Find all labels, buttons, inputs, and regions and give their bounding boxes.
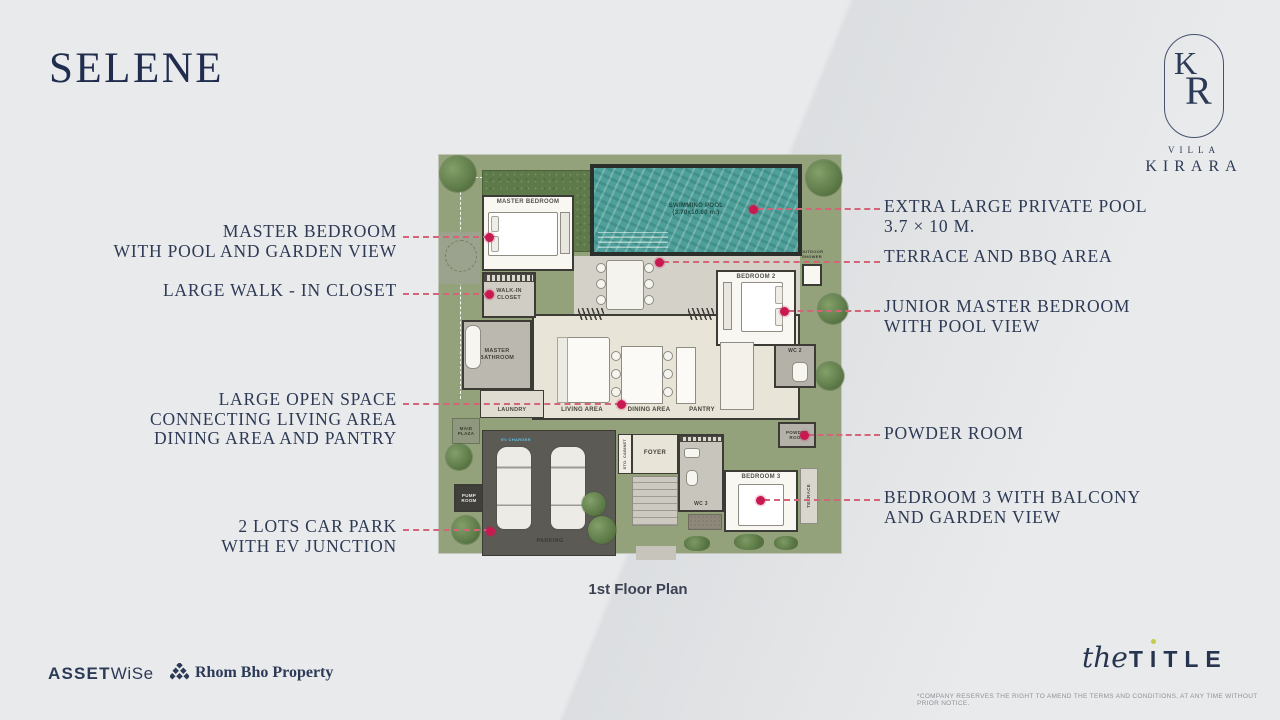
chair-10 [663,351,673,361]
sofa-back [557,337,568,403]
door-1 [578,308,604,320]
ev-charger-label-label: EV CHARGER [501,438,531,443]
outdoor-shower-label-label: OUTDOOR SHOWER [801,250,824,260]
assetwise-text-2: WiSe [111,664,154,683]
door-2 [688,308,714,320]
callout-terrace-bbq: TERRACE AND BBQ AREA [884,247,1244,267]
the-title-logo: the TITLE [1082,644,1228,672]
chair-2 [596,279,606,289]
tree-5 [446,444,472,470]
foyer-label: FOYER [644,450,666,457]
title-letters-tle: TLE [1163,646,1227,672]
wc3-note [680,436,722,442]
assetwise-text-1: ASSET [48,664,111,683]
outdoor-shower [802,264,822,286]
laundry: LAUNDRY [480,390,544,418]
callout-walk-in-closet: LARGE WALK - IN CLOSET [67,281,397,301]
living-label: LIVING AREA [542,406,622,416]
chair-11 [663,369,673,379]
walkin-closet-label: WALK-IN CLOSET [496,288,522,301]
walkin-shelf [484,274,534,282]
tree-1 [440,156,476,192]
chair-7 [611,351,621,361]
title-letter-i: I [1150,646,1163,672]
callout-bedroom-3: BEDROOM 3 WITH BALCONY AND GARDEN VIEW [884,488,1244,527]
b2-pillow-2 [775,308,783,326]
laundry-label: LAUNDRY [481,407,543,414]
floor-plan: SWIMMING POOL (3.70x10.00 m.)MASTER BEDR… [438,148,846,560]
tree-3 [818,294,848,324]
wc2-label: WC 2 [776,348,814,354]
bush-1 [684,536,710,551]
tree-2 [806,160,842,196]
title-i-dot [1151,639,1156,644]
bush-3 [774,536,798,550]
gravel [688,514,722,530]
master-bedroom-label: MASTER BEDROOM [484,199,572,206]
sto-cabinet: STO. CABINET [618,434,632,474]
assetwise-logo: ASSETWiSe [48,664,154,684]
chair-12 [663,387,673,397]
callout-car-park: 2 LOTS CAR PARK WITH EV JUNCTION [67,517,397,556]
logo-monogram-frame: K R [1164,34,1224,138]
car-1 [496,446,532,530]
callout-private-pool: EXTRA LARGE PRIVATE POOL 3.7 × 10 M. [884,197,1244,236]
page-title: SELENE [49,44,224,93]
tree-4 [816,362,844,390]
foyer: FOYER [632,434,678,474]
master-bathroom-label: MASTER BATHROOM [480,348,514,361]
pump-room-label: PUMP ROOM [461,493,476,504]
maid-plaza-label: MAID PLAZA [458,426,475,437]
disclaimer-text: *COMPANY RESERVES THE RIGHT TO AMEND THE… [917,693,1280,707]
logo-villa-text: VILLA [1128,145,1260,155]
parking-label: PARKING [510,536,590,546]
car-2 [550,446,586,530]
mb-pillow-2 [491,236,499,252]
bathtub [465,325,481,369]
the-title-script: the [1082,644,1128,672]
chair-5 [644,279,654,289]
living-label-label: LIVING AREA [561,407,603,414]
boundary-left [460,177,461,399]
floor-plan-caption: 1st Floor Plan [538,581,738,598]
dining-label-label: DINING AREA [628,407,671,414]
chair-1 [596,263,606,273]
callout-junior-master: JUNIOR MASTER BEDROOM WITH POOL VIEW [884,297,1244,336]
mb-pillow-1 [491,216,499,232]
bedroom3-label: BEDROOM 3 [726,474,796,481]
wc2-fixture [792,362,808,382]
callout-open-space: LARGE OPEN SPACE CONNECTING LIVING AREA … [67,390,397,449]
walkway-circle [445,240,477,272]
callout-master-bedroom: MASTER BEDROOM WITH POOL AND GARDEN VIEW [67,222,397,261]
outdoor-table [606,260,644,310]
entry-path [636,546,676,560]
chair-9 [611,387,621,397]
villa-kirara-logo: K R VILLA KIRARA [1128,30,1260,176]
monogram-r: R [1185,67,1212,114]
chair-6 [644,295,654,305]
pantry-label-label: PANTRY [689,407,715,414]
sto-cabinet-label: STO. CABINET [623,439,628,469]
wc3-sink [684,448,700,458]
chair-4 [644,263,654,273]
b2-pillow-1 [775,286,783,304]
rhom-bho-diamond-icon [170,663,189,683]
entry-steps [632,476,678,526]
maid-plaza: MAID PLAZA [452,418,480,444]
wc3-label: WC 3 [680,501,722,507]
logo-kirara-text: KIRARA [1128,158,1260,176]
bush-2 [734,534,764,550]
terrace-3: TERRACE [800,468,818,524]
chair-8 [611,369,621,379]
b3-bed [738,484,784,526]
outdoor-shower-label: OUTDOOR SHOWER [786,248,838,262]
ev-charger-label: EV CHARGER [494,436,538,444]
powder-room: POWDER ROOM [778,422,816,448]
pool-steps [598,232,668,248]
rhom-bho-name: Rhom Bho Property [195,664,333,682]
parking-label-label: PARKING [536,538,563,545]
rhom-bho-logo: Rhom Bho Property [170,663,333,683]
wc3: WC 3 [678,434,724,512]
callout-powder-room: POWDER ROOM [884,424,1244,444]
mb-bench [560,212,570,254]
dining-table [621,346,663,404]
pool-label: SWIMMING POOL (3.70x10.00 m.) [669,203,724,217]
pantry-island [676,347,696,404]
kitchen-counter [720,342,754,410]
parking-bush [588,516,616,544]
tree-6 [452,516,480,544]
terrace-3-label: TERRACE [806,484,811,508]
powder-room-label: POWDER ROOM [786,430,808,441]
b2-bench [723,282,732,330]
bedroom2-label: BEDROOM 2 [718,274,794,281]
wc3-toilet [686,470,698,486]
pump-room: PUMP ROOM [454,484,484,512]
title-letter-t: T [1129,646,1150,672]
tree-7 [582,492,606,516]
the-title-caps: TITLE [1129,646,1228,672]
chair-3 [596,295,606,305]
